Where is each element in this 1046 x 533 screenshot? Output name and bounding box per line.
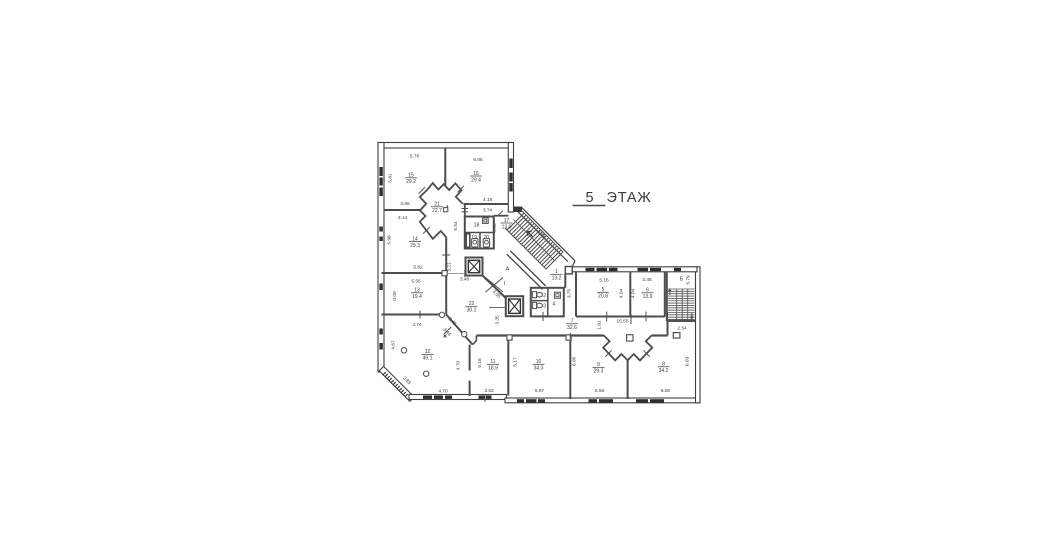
svg-text:0.00: 0.00	[492, 223, 498, 233]
svg-text:5.17: 5.17	[512, 357, 518, 367]
svg-text:3.65: 3.65	[400, 201, 410, 207]
svg-text:4: 4	[552, 302, 555, 308]
svg-text:3.62: 3.62	[484, 388, 494, 394]
svg-text:А: А	[505, 266, 509, 272]
svg-text:3.46: 3.46	[642, 277, 652, 283]
svg-text:29.3: 29.3	[594, 369, 604, 375]
svg-text:ЭТАЖ: ЭТАЖ	[607, 190, 652, 206]
svg-text:3.14: 3.14	[398, 215, 408, 221]
svg-text:3.74: 3.74	[483, 208, 493, 214]
svg-text:5.82: 5.82	[413, 264, 423, 270]
svg-text:3.75: 3.75	[567, 289, 573, 299]
svg-text:32.6: 32.6	[567, 325, 577, 331]
svg-text:5.81: 5.81	[388, 173, 394, 183]
svg-text:6.54: 6.54	[453, 221, 459, 231]
svg-text:0.00: 0.00	[392, 291, 398, 301]
svg-text:3.48: 3.48	[460, 277, 470, 283]
svg-text:49.1: 49.1	[423, 356, 433, 362]
svg-text:5.16: 5.16	[599, 278, 609, 284]
svg-text:20: 20	[483, 235, 489, 241]
svg-text:4.19: 4.19	[483, 197, 493, 203]
svg-text:4.04: 4.04	[618, 289, 624, 299]
svg-text:1.61: 1.61	[596, 320, 602, 330]
svg-text:13.2: 13.2	[552, 276, 562, 282]
svg-text:34.2: 34.2	[659, 368, 669, 374]
svg-text:29.3: 29.3	[410, 243, 420, 249]
svg-text:5.56: 5.56	[411, 279, 421, 285]
svg-text:2.54: 2.54	[677, 326, 687, 332]
svg-text:18: 18	[474, 223, 480, 229]
svg-text:19: 19	[471, 235, 477, 241]
svg-text:3: 3	[543, 304, 546, 310]
svg-text:30.1: 30.1	[467, 308, 477, 314]
svg-text:3.35: 3.35	[495, 315, 501, 325]
svg-text:19.4: 19.4	[412, 294, 422, 300]
svg-text:4.70: 4.70	[438, 388, 448, 394]
svg-text:5.78: 5.78	[410, 154, 420, 160]
svg-text:4.74: 4.74	[412, 322, 422, 328]
svg-text:5.79: 5.79	[685, 275, 691, 285]
svg-text:4.70: 4.70	[455, 361, 461, 371]
svg-text:18.9: 18.9	[488, 366, 498, 372]
svg-text:4.04: 4.04	[630, 289, 636, 299]
svg-text:2: 2	[543, 293, 546, 299]
svg-text:4.67: 4.67	[390, 340, 396, 350]
svg-text:15.55: 15.55	[616, 319, 628, 325]
svg-text:5.98: 5.98	[387, 235, 393, 245]
svg-text:13.9: 13.9	[643, 294, 653, 300]
svg-text:3.21: 3.21	[446, 262, 452, 272]
svg-text:29.4: 29.4	[471, 177, 481, 183]
svg-text:6.50: 6.50	[661, 388, 671, 394]
svg-text:29.2: 29.2	[406, 179, 416, 185]
svg-text:5.18: 5.18	[477, 358, 483, 368]
svg-text:20.8: 20.8	[598, 294, 608, 300]
svg-text:22.7: 22.7	[432, 208, 442, 214]
svg-text:6.06: 6.06	[473, 157, 483, 163]
svg-text:I: I	[504, 281, 506, 287]
svg-text:Б: Б	[680, 276, 684, 282]
svg-text:6.05: 6.05	[571, 357, 577, 367]
svg-text:5.56: 5.56	[595, 388, 605, 394]
svg-text:5: 5	[585, 190, 593, 206]
svg-text:6.03: 6.03	[684, 357, 690, 367]
svg-text:34.3: 34.3	[534, 366, 544, 372]
svg-text:5.97: 5.97	[535, 388, 545, 394]
svg-text:13.0: 13.0	[502, 224, 512, 230]
